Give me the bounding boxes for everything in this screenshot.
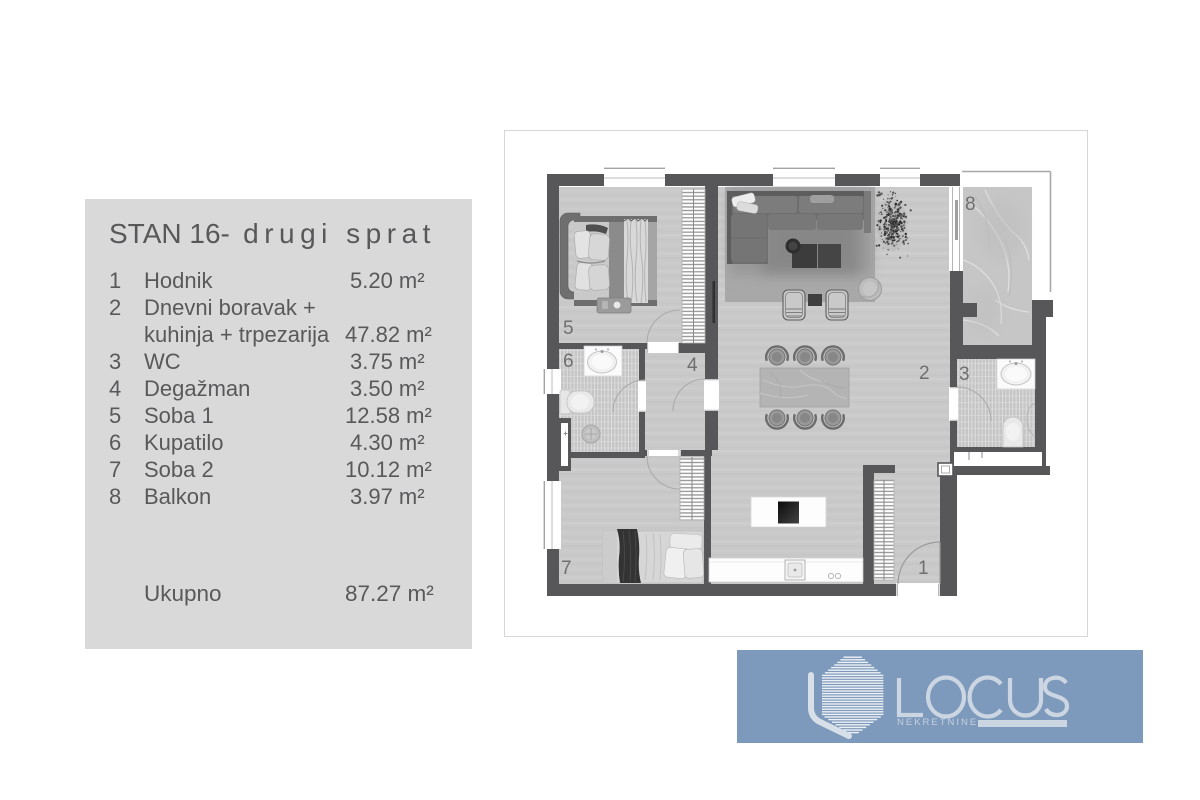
- svg-text:4: 4: [687, 355, 698, 376]
- svg-text:1: 1: [918, 558, 929, 579]
- svg-text:6: 6: [563, 351, 574, 372]
- svg-text:2: 2: [919, 363, 930, 384]
- svg-text:8: 8: [965, 194, 976, 215]
- svg-text:7: 7: [561, 558, 572, 579]
- svg-text:5: 5: [563, 318, 574, 339]
- svg-text:3: 3: [959, 364, 970, 385]
